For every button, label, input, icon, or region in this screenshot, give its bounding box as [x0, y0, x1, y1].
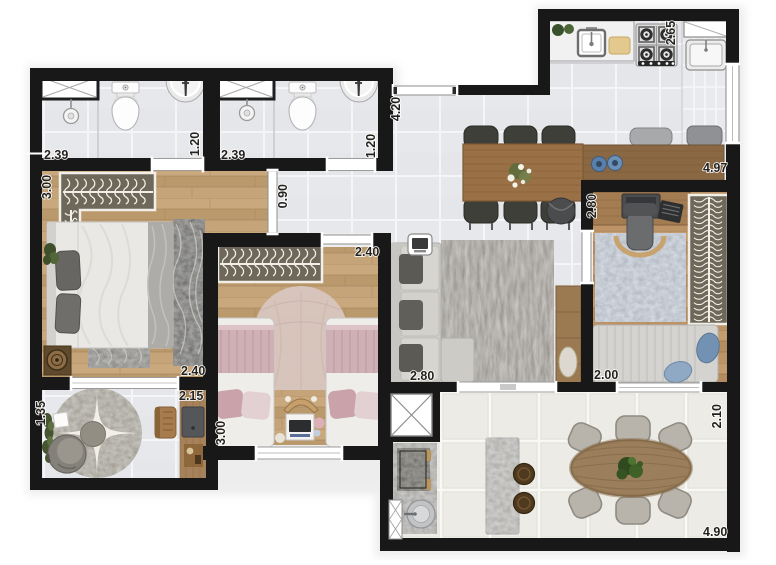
- svg-text:2.39: 2.39: [44, 148, 68, 162]
- svg-text:1.20: 1.20: [188, 132, 202, 156]
- svg-text:3.00: 3.00: [40, 175, 54, 199]
- svg-text:2.39: 2.39: [221, 148, 245, 162]
- svg-text:2.00: 2.00: [594, 368, 618, 382]
- svg-text:4.20: 4.20: [389, 97, 403, 121]
- svg-text:2.40: 2.40: [181, 364, 205, 378]
- svg-text:2.65: 2.65: [664, 21, 678, 45]
- svg-text:4.97: 4.97: [703, 161, 727, 175]
- svg-text:2.80: 2.80: [585, 194, 599, 218]
- svg-text:2.15: 2.15: [179, 389, 203, 403]
- svg-text:1.35: 1.35: [34, 401, 48, 425]
- svg-text:2.80: 2.80: [410, 369, 434, 383]
- svg-text:3.00: 3.00: [214, 421, 228, 445]
- svg-text:2.40: 2.40: [355, 245, 379, 259]
- svg-text:1.20: 1.20: [364, 134, 378, 158]
- svg-text:4.90: 4.90: [703, 525, 727, 539]
- svg-text:0.90: 0.90: [276, 184, 290, 208]
- svg-text:2.10: 2.10: [710, 404, 724, 428]
